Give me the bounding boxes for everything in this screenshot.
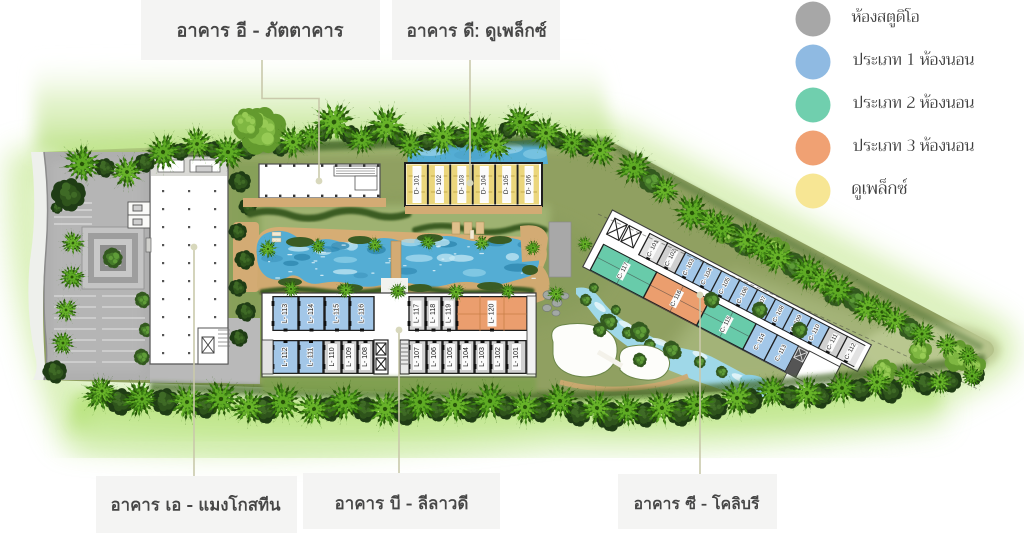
svg-text:L- 109: L- 109 [346, 347, 353, 367]
svg-text:L- 103: L- 103 [479, 347, 486, 367]
svg-text:L- 102: L- 102 [495, 347, 502, 367]
svg-text:D- 104: D- 104 [481, 174, 488, 194]
svg-text:L- 117: L- 117 [414, 304, 421, 323]
svg-text:L- 120: L- 120 [489, 303, 496, 323]
svg-text:D- 101: D- 101 [414, 174, 421, 194]
svg-text:L- 112: L- 112 [282, 347, 289, 366]
svg-text:L- 106: L- 106 [431, 347, 438, 367]
svg-text:L- 114: L- 114 [308, 304, 315, 323]
svg-text:L- 118: L- 118 [430, 304, 437, 323]
svg-text:L- 105: L- 105 [447, 347, 454, 367]
svg-text:D- 103: D- 103 [458, 174, 465, 194]
svg-text:L- 104: L- 104 [463, 347, 470, 367]
svg-text:L- 110: L- 110 [329, 347, 336, 366]
svg-text:L- 119: L- 119 [446, 304, 453, 323]
svg-text:L- 116: L- 116 [359, 304, 366, 323]
svg-text:D- 105: D- 105 [503, 174, 510, 194]
svg-text:L- 108: L- 108 [362, 347, 369, 367]
svg-text:D- 102: D- 102 [436, 174, 443, 194]
svg-text:D- 106: D- 106 [526, 174, 533, 194]
svg-text:L- 107: L- 107 [414, 347, 421, 367]
svg-text:L- 101: L- 101 [513, 347, 520, 367]
svg-text:L- 111: L- 111 [308, 347, 315, 366]
svg-text:L- 115: L- 115 [334, 304, 341, 323]
svg-text:L- 113: L- 113 [282, 304, 289, 323]
